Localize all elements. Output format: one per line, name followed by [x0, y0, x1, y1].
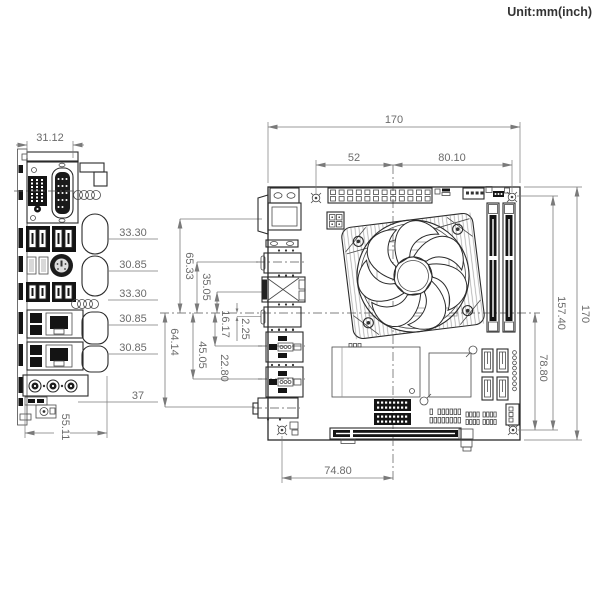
pin-header-column — [513, 351, 517, 391]
front-panel-header — [430, 409, 461, 423]
dim-row-2: 30.85 — [119, 259, 147, 271]
atx-power-connector — [328, 188, 450, 203]
usb-row-a — [26, 226, 76, 252]
usb-ps2-row — [27, 254, 73, 277]
audio-jacks — [23, 375, 88, 396]
dim-board-height: 170 — [579, 305, 591, 323]
dim-edge-45: 45.05 — [196, 341, 208, 369]
motherboard-top-view: 170 52 80.10 170 157.40 78.80 74.80 — [253, 114, 591, 483]
sata-ports — [482, 349, 508, 400]
dim-row-3: 33.30 — [119, 288, 147, 300]
lan-edge-1 — [266, 329, 303, 362]
m2-module — [332, 344, 420, 398]
dim-rear-bottom: 55.11 — [59, 414, 71, 441]
mounting-hole-bottom-right — [508, 425, 518, 435]
motherboard-dimension-drawing: 31.12 33.30 30.85 33.30 30.85 30.85 37 5… — [0, 0, 600, 600]
dim-row-5: 30.85 — [119, 342, 147, 354]
rear-panel-view: 31.12 33.30 30.85 33.30 30.85 30.85 37 5… — [14, 132, 158, 440]
dim-rear-width: 31.12 — [36, 132, 64, 144]
dim-hole-span: 157.40 — [555, 296, 567, 330]
atx12v-connector — [327, 212, 344, 229]
dim-edge-35: 35.05 — [200, 273, 212, 301]
dim-center-to-hole: 78.80 — [537, 354, 549, 382]
gpio-header-1 — [374, 399, 411, 411]
dim-hole-left: 52 — [348, 152, 360, 164]
lan-usb-combo-2 — [27, 342, 83, 370]
dim-edge-64: 64.14 — [168, 328, 180, 356]
dim-edge-22: 22.80 — [218, 354, 230, 382]
usb-edge-1 — [261, 249, 301, 276]
vga-edge — [258, 188, 301, 247]
dim-row-1: 33.30 — [119, 227, 147, 239]
bottom-parts — [20, 397, 56, 420]
dim-edge-2: 2.25 — [239, 318, 251, 339]
mounting-hole-top-right — [507, 192, 517, 202]
dvi-vga-block — [14, 161, 78, 223]
mounting-hole-bottom-left — [277, 425, 287, 435]
pcie-slot — [330, 428, 473, 451]
dim-edge-65: 65.33 — [183, 252, 195, 280]
bracket-side-profile — [72, 163, 109, 372]
top-right-headers — [463, 187, 510, 200]
chipset — [420, 346, 477, 405]
power-connector-small — [506, 404, 519, 425]
lan-edge-2 — [266, 364, 303, 397]
gpio-header-2 — [374, 413, 411, 425]
audio-edge — [253, 398, 298, 421]
dim-bottom-hole: 74.80 — [324, 465, 352, 477]
cpu-cooler — [340, 205, 486, 342]
dim-hole-right: 80.10 — [438, 152, 466, 164]
aux-header-1 — [466, 412, 479, 425]
aux-header-2 — [483, 412, 496, 425]
unit-label: Unit:mm(inch) — [507, 5, 592, 19]
usb-edge-2 — [261, 303, 301, 330]
edge-connectors — [253, 188, 305, 421]
mounting-hole-top-left — [311, 193, 321, 203]
dim-board-width: 170 — [385, 114, 403, 126]
dim-row-6: 37 — [132, 390, 144, 402]
usb-row-c — [26, 282, 76, 302]
lan-usb-combo-1 — [27, 310, 83, 338]
dim-row-4: 30.85 — [119, 313, 147, 325]
dim-edge-16: 16.17 — [219, 310, 231, 338]
